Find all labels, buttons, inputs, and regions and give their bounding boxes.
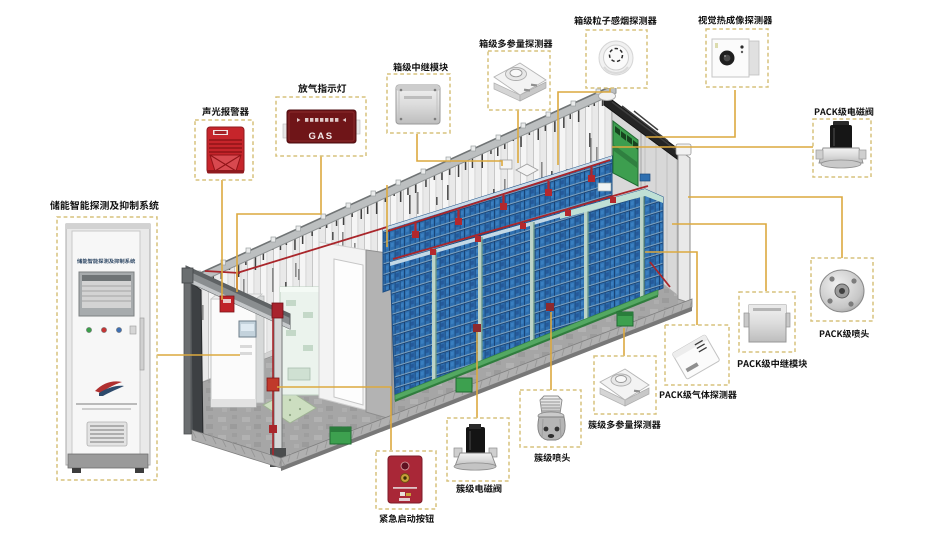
svg-text:GAS: GAS xyxy=(308,131,333,142)
